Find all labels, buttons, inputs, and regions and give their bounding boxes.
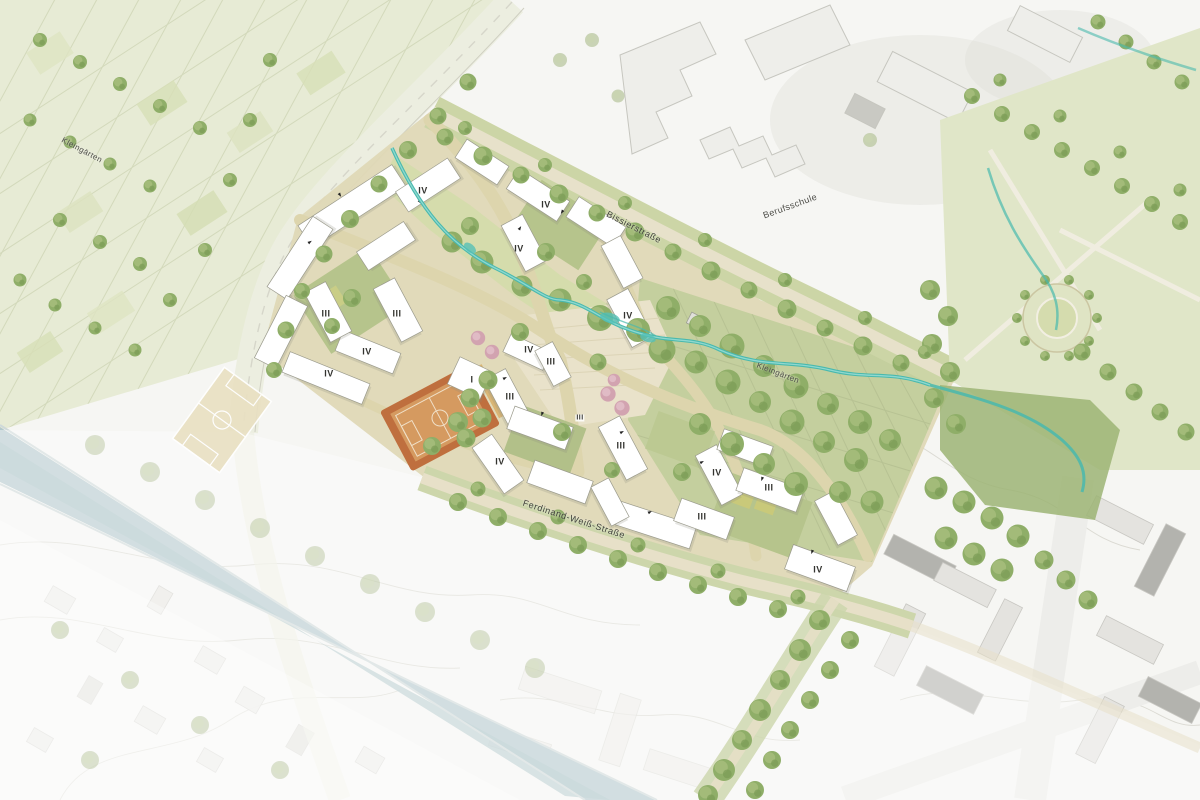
tree-icon xyxy=(981,507,1004,530)
tree-icon xyxy=(1174,184,1187,197)
tree-icon xyxy=(631,538,646,553)
tree-icon xyxy=(1040,351,1050,361)
tree-icon xyxy=(550,185,569,204)
tree-icon xyxy=(716,370,741,395)
tree-icon xyxy=(698,233,712,247)
tree-icon xyxy=(689,315,711,337)
tree-icon xyxy=(278,322,295,339)
tree-icon xyxy=(1114,146,1127,159)
tree-icon xyxy=(861,491,884,514)
tree-icon xyxy=(449,493,467,511)
tree-icon xyxy=(711,564,726,579)
tree-icon xyxy=(920,280,940,300)
tree-icon xyxy=(513,167,530,184)
tree-icon xyxy=(461,389,480,408)
tree-icon xyxy=(918,345,932,359)
tree-icon xyxy=(938,306,958,326)
tree-icon xyxy=(1079,591,1098,610)
tree-icon xyxy=(1084,160,1100,176)
tree-icon xyxy=(746,781,764,799)
blossom-tree-icon xyxy=(485,345,499,359)
tree-icon xyxy=(720,432,744,456)
tree-icon xyxy=(935,527,958,550)
tree-icon xyxy=(551,510,566,525)
tree-icon xyxy=(471,482,486,497)
tree-icon xyxy=(893,355,910,372)
tree-icon xyxy=(1024,124,1040,140)
tree-icon xyxy=(569,536,587,554)
tree-icon xyxy=(689,576,707,594)
tree-icon xyxy=(784,472,808,496)
blossom-tree-icon xyxy=(614,400,629,415)
tree-icon xyxy=(442,232,463,253)
tree-icon xyxy=(263,53,277,67)
tree-icon xyxy=(626,223,645,242)
tree-icon xyxy=(1064,351,1074,361)
tree-icon xyxy=(474,147,493,166)
tree-icon xyxy=(343,289,361,307)
tree-icon xyxy=(817,320,834,337)
tree-icon xyxy=(223,173,237,187)
tree-icon xyxy=(1054,110,1067,123)
tree-icon xyxy=(537,243,555,261)
tree-icon xyxy=(778,273,792,287)
tree-icon xyxy=(1091,15,1106,30)
tree-icon xyxy=(879,429,901,451)
tree-icon xyxy=(1064,275,1074,285)
tree-icon xyxy=(863,133,877,147)
tree-icon xyxy=(198,243,212,257)
tree-icon xyxy=(991,559,1014,582)
tree-icon xyxy=(14,274,27,287)
tree-icon xyxy=(780,410,805,435)
tree-icon xyxy=(430,108,447,125)
tree-icon xyxy=(778,300,797,319)
tree-icon xyxy=(191,716,209,734)
tree-icon xyxy=(784,374,809,399)
tree-icon xyxy=(769,600,787,618)
tree-icon xyxy=(1035,551,1054,570)
tree-icon xyxy=(844,448,868,472)
tree-icon xyxy=(1020,290,1030,300)
tree-icon xyxy=(1114,178,1130,194)
tree-icon xyxy=(266,362,282,378)
tree-icon xyxy=(713,759,735,781)
tree-icon xyxy=(1057,571,1076,590)
tree-icon xyxy=(129,344,142,357)
tree-icon xyxy=(732,730,752,750)
tree-icon xyxy=(140,462,160,482)
tree-icon xyxy=(163,293,177,307)
tree-icon xyxy=(538,158,552,172)
tree-icon xyxy=(685,351,708,374)
tree-icon xyxy=(64,136,77,149)
tree-icon xyxy=(858,311,872,325)
tree-icon xyxy=(770,670,790,690)
tree-icon xyxy=(649,563,667,581)
tree-icon xyxy=(73,55,87,69)
tree-icon xyxy=(121,671,139,689)
tree-icon xyxy=(93,235,107,249)
tree-icon xyxy=(53,213,67,227)
site-plan-map xyxy=(0,0,1200,800)
tree-icon xyxy=(489,508,507,526)
tree-icon xyxy=(665,244,682,261)
tree-icon xyxy=(1007,525,1030,548)
tree-icon xyxy=(801,691,819,709)
tree-icon xyxy=(33,33,47,47)
tree-icon xyxy=(994,74,1007,87)
tree-icon xyxy=(553,423,571,441)
tree-icon xyxy=(324,318,340,334)
tree-icon xyxy=(51,621,69,639)
tree-icon xyxy=(673,463,691,481)
tree-icon xyxy=(1175,75,1190,90)
tree-icon xyxy=(529,522,547,540)
tree-icon xyxy=(294,283,310,299)
tree-icon xyxy=(479,371,498,390)
tree-icon xyxy=(1144,196,1160,212)
tree-icon xyxy=(925,477,948,500)
tree-icon xyxy=(829,481,851,503)
tree-icon xyxy=(458,121,472,135)
tree-icon xyxy=(689,413,711,435)
tree-icon xyxy=(193,121,207,135)
tree-icon xyxy=(964,88,980,104)
tree-icon xyxy=(576,274,592,290)
tree-icon xyxy=(813,431,835,453)
tree-icon xyxy=(946,414,966,434)
tree-icon xyxy=(753,355,775,377)
tree-icon xyxy=(953,491,976,514)
tree-icon xyxy=(940,362,960,382)
tree-icon xyxy=(749,391,771,413)
tree-icon xyxy=(243,113,257,127)
tree-icon xyxy=(1178,424,1195,441)
tree-icon xyxy=(1084,290,1094,300)
tree-icon xyxy=(133,257,147,271)
tree-icon xyxy=(821,661,839,679)
tree-icon xyxy=(144,180,157,193)
masterplan-canvas: Kleingärten Berufsschule Kleingärten Bis… xyxy=(0,0,1200,800)
blossom-tree-icon xyxy=(600,386,615,401)
tree-icon xyxy=(1126,384,1143,401)
tree-icon xyxy=(585,33,599,47)
tree-icon xyxy=(461,217,479,235)
tree-icon xyxy=(360,574,380,594)
tree-icon xyxy=(457,429,476,448)
tree-icon xyxy=(250,518,270,538)
tree-icon xyxy=(841,631,859,649)
tree-icon xyxy=(49,299,62,312)
tree-icon xyxy=(994,106,1010,122)
tree-icon xyxy=(113,77,127,91)
tree-icon xyxy=(423,437,441,455)
tree-icon xyxy=(437,129,454,146)
tree-icon xyxy=(1172,214,1188,230)
tree-icon xyxy=(817,393,839,415)
tree-icon xyxy=(789,639,811,661)
tree-icon xyxy=(656,296,680,320)
tree-icon xyxy=(618,196,632,210)
tree-icon xyxy=(604,462,620,478)
tree-icon xyxy=(854,337,873,356)
tree-icon xyxy=(590,354,607,371)
tree-icon xyxy=(271,761,289,779)
tree-icon xyxy=(153,99,167,113)
tree-icon xyxy=(753,453,775,475)
tree-icon xyxy=(1152,404,1169,421)
tree-icon xyxy=(24,114,37,127)
tree-icon xyxy=(195,490,215,510)
tree-icon xyxy=(702,262,721,281)
tree-icon xyxy=(609,550,627,568)
tree-icon xyxy=(371,176,388,193)
blossom-tree-icon xyxy=(608,374,621,387)
tree-icon xyxy=(341,210,359,228)
tree-icon xyxy=(1020,336,1030,346)
tree-icon xyxy=(1012,313,1022,323)
tree-icon xyxy=(553,53,567,67)
tree-icon xyxy=(81,751,99,769)
tree-icon xyxy=(612,90,625,103)
tree-icon xyxy=(104,158,117,171)
tree-icon xyxy=(1074,344,1091,361)
tree-icon xyxy=(810,610,830,630)
tree-icon xyxy=(924,388,944,408)
tree-icon xyxy=(473,409,492,428)
tree-icon xyxy=(460,74,477,91)
tree-icon xyxy=(781,721,799,739)
tree-icon xyxy=(729,588,747,606)
tree-icon xyxy=(525,658,545,678)
tree-icon xyxy=(305,546,325,566)
tree-icon xyxy=(399,141,417,159)
tree-icon xyxy=(963,543,986,566)
tree-icon xyxy=(1054,142,1070,158)
tree-icon xyxy=(763,751,781,769)
blossom-tree-icon xyxy=(471,331,485,345)
tree-icon xyxy=(791,590,806,605)
tree-icon xyxy=(511,323,529,341)
tree-icon xyxy=(316,246,333,263)
tree-icon xyxy=(1100,364,1117,381)
tree-icon xyxy=(1092,313,1102,323)
tree-icon xyxy=(749,699,771,721)
tree-icon xyxy=(470,630,490,650)
tree-icon xyxy=(741,282,758,299)
tree-icon xyxy=(589,205,606,222)
tree-icon xyxy=(415,602,435,622)
tree-icon xyxy=(85,435,105,455)
tree-icon xyxy=(848,410,872,434)
tree-icon xyxy=(89,322,102,335)
